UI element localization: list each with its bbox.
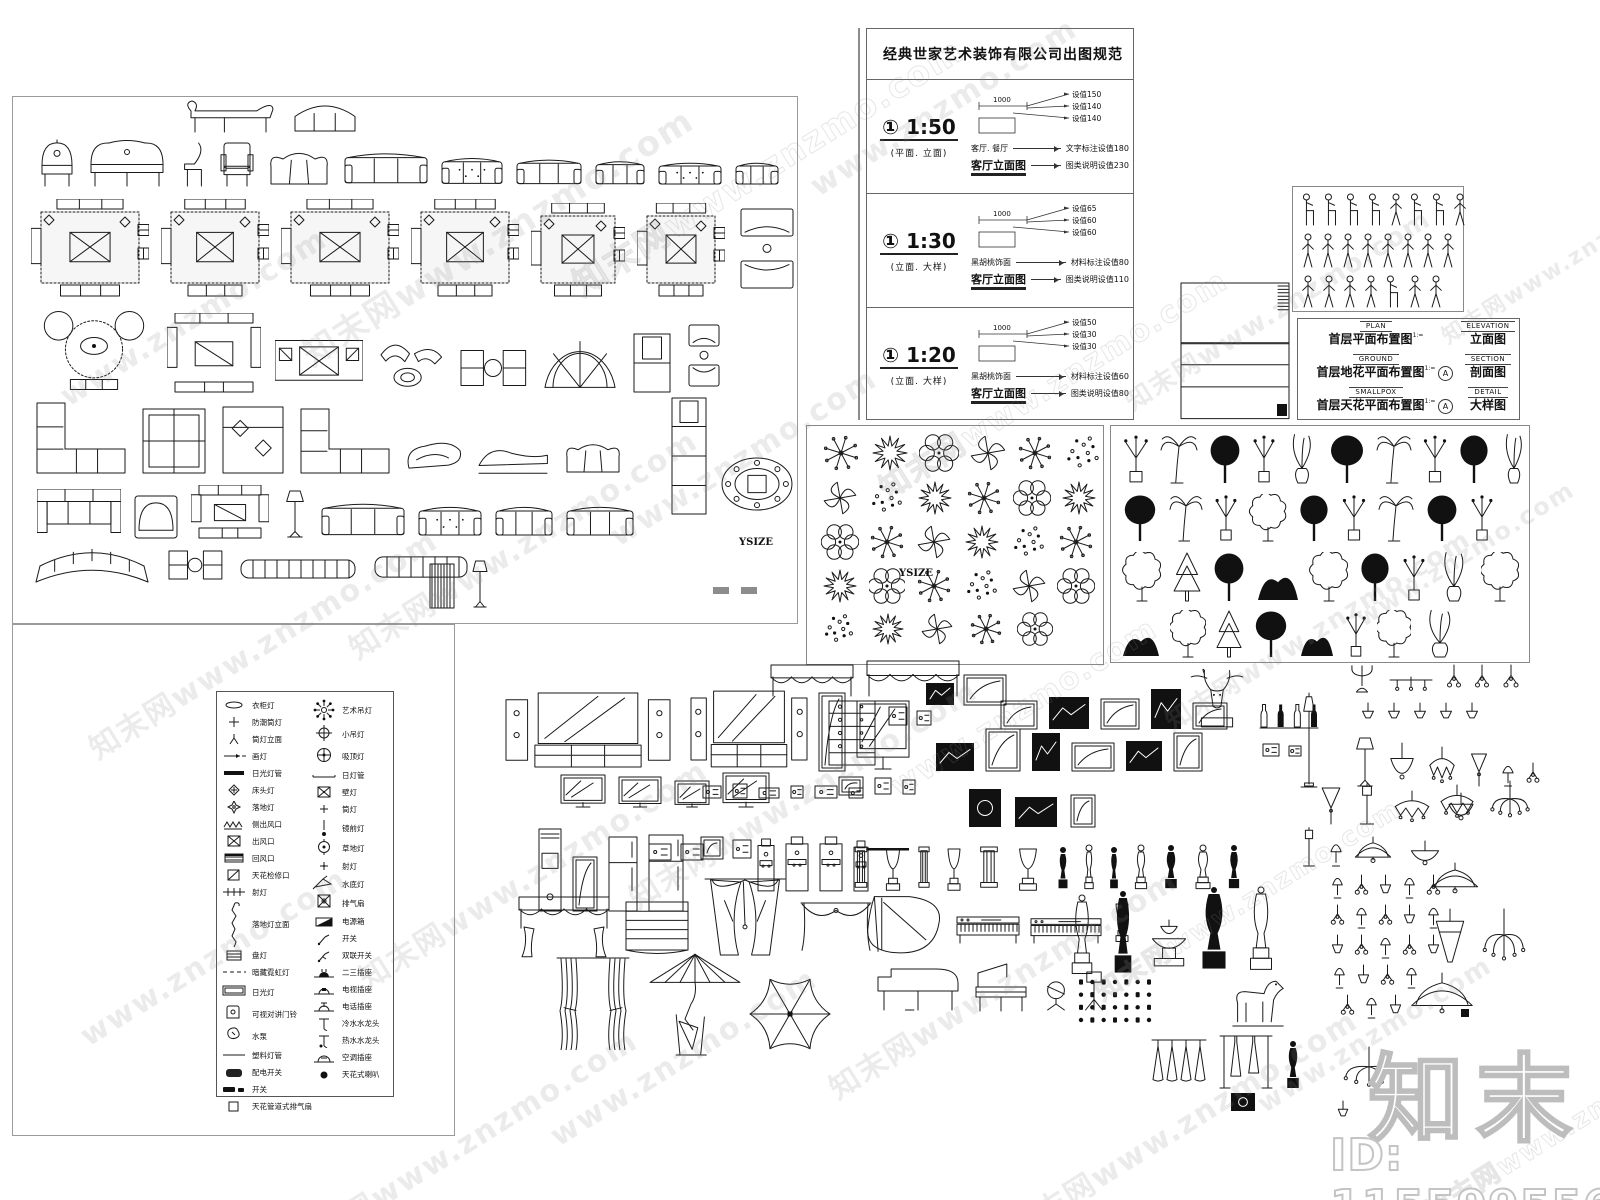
cad-block-trophy [944, 847, 964, 893]
cad-block-pt3 [1057, 568, 1095, 604]
cad-block-row [429, 559, 491, 609]
cad-block-stripedpanel [429, 563, 455, 609]
cad-block-gad [814, 784, 838, 800]
cad-block-row [1460, 1008, 1470, 1018]
cad-block-recliner [405, 437, 463, 475]
cad-block-row [821, 524, 1095, 560]
standards-scale-section: ① 1:30 (立面. 大样) 1000 设值65 设值60 设值60 黑胡桃饰… [867, 194, 1133, 308]
diamond-symbol-icon [221, 784, 247, 798]
legend-label: 镜前灯 [342, 823, 365, 834]
cad-block-tv [618, 776, 662, 810]
cad-block-row [700, 836, 752, 860]
cad-block-domep [1428, 862, 1482, 902]
scale-label: ① 1:30 (立面. 大样) [867, 194, 971, 307]
cad-block-pt5 [963, 568, 1001, 604]
dbl-symbol-icon [221, 981, 247, 1003]
cad-block-ypend [1340, 994, 1355, 1020]
legend-label: 开关 [252, 1084, 267, 1095]
cad-block-gad [902, 778, 916, 796]
cad-block-sofa_t [418, 499, 482, 539]
legend-row: 落地灯 [221, 799, 312, 816]
legend-label: 艺术吊灯 [342, 705, 372, 716]
cad-block-person_sit [1367, 193, 1383, 227]
legend-row: 日光灯 [221, 981, 312, 1003]
cad-block-pt2 [963, 524, 1001, 560]
cad-block-frame [1100, 698, 1140, 730]
cad-block-sofa [495, 499, 553, 539]
thin-symbol-icon [221, 1049, 247, 1063]
svg-text:设值30: 设值30 [1072, 341, 1097, 351]
cad-block-tr_black [1207, 434, 1243, 484]
dimension-diagram: 1000 设值50 设值30 设值30 [971, 314, 1127, 364]
drawing-label-row: SECTION 剖面图A [1458, 354, 1518, 387]
cad-block-person [1301, 275, 1315, 309]
sq-symbol-icon [221, 1100, 247, 1114]
cad-block-minil [1354, 904, 1369, 930]
cad-block-rug [31, 199, 149, 297]
cad-block-pot_tall [1401, 552, 1427, 602]
cad-block-palm [1168, 494, 1204, 542]
cad-block-row [1068, 890, 1136, 976]
detail-badge: A [1438, 399, 1453, 414]
legend-row: 吸顶灯 [311, 745, 380, 767]
cad-block-conew [1318, 786, 1344, 826]
cad-block-parasol [748, 972, 832, 1056]
cad-block-traypend [1378, 874, 1393, 900]
cad-block-crownch [1390, 790, 1434, 826]
cad-block-row [935, 728, 1203, 772]
cad-block-frameb [1048, 696, 1090, 730]
legend-row: 电话插座 [311, 998, 380, 1015]
cad-block-gad [916, 709, 932, 727]
legend-label: 衣柜灯 [252, 700, 275, 711]
cad-block-sofaset2 [191, 485, 269, 539]
cad-block-sofa3_plan [37, 489, 121, 539]
cad-block-row [713, 587, 757, 594]
legend-label: 塑料灯管 [252, 1050, 282, 1061]
cad-block-statueb [1110, 890, 1136, 976]
cad-block-pt1 [1057, 524, 1095, 560]
legend-label: 日灯管 [342, 770, 365, 781]
legend-label: 日光灯 [252, 987, 275, 998]
cad-block-sofasq [141, 407, 207, 475]
cad-block-settee_o [88, 137, 166, 187]
legend-row: 筒灯立面 [221, 731, 312, 748]
cad-block-pt1 [967, 612, 1005, 646]
cad-block-row [1330, 934, 1441, 960]
cad-block-row [183, 99, 357, 133]
cad-block-tr_black [1121, 494, 1159, 542]
cad-block-traypend [1360, 702, 1376, 724]
plus-symbol-icon [311, 803, 337, 817]
svg-text:设值60: 设值60 [1072, 215, 1097, 225]
cad-block-row [888, 705, 932, 727]
cad-block-traypend [1464, 702, 1480, 724]
boxx-symbol-icon [221, 835, 247, 849]
cad-block-person_sit [1301, 193, 1317, 227]
cdot-symbol-icon [311, 838, 337, 858]
legend-label: 电源箱 [342, 916, 365, 927]
legend-row: 冷水水龙头 [311, 1015, 380, 1032]
cad-block-person [1321, 233, 1335, 269]
cad-block-person_sit [1323, 193, 1339, 227]
cad-block-person [1301, 233, 1315, 269]
cad-block-minil [1332, 964, 1347, 990]
cad-block-sofa_t [441, 151, 503, 187]
fatbar-symbol-icon [221, 767, 247, 781]
cad-block-fountain [1146, 918, 1192, 970]
cad-block-row [37, 485, 634, 539]
legend-label: 出风口 [252, 836, 275, 847]
cad-block-tr_round [1309, 552, 1349, 602]
cad-block-gad [732, 838, 752, 860]
cad-block-drape [704, 876, 786, 958]
cad-block-ypend [1330, 904, 1345, 930]
cad-block-traypend [1438, 702, 1454, 724]
legend-column: 艺术吊灯 小吊灯 吸顶灯 日灯管 壁灯 筒灯 镜前灯 草地灯 射灯 水底灯 排气… [311, 697, 380, 1083]
cross-symbol-icon [221, 716, 247, 730]
cad-block-sofa [566, 499, 634, 539]
dimension-diagram: 1000 设值150 设值140 设值140 [971, 86, 1127, 136]
tc-symbol-icon [311, 1017, 337, 1031]
cad-block-frame [985, 728, 1021, 772]
legend-label: 防潮筒灯 [252, 717, 282, 728]
cad-block-minil [1330, 874, 1345, 900]
cad-block-pt4 [919, 612, 955, 646]
cad-block-l_sofa [299, 407, 391, 475]
cad-block-rug [161, 199, 269, 297]
legend-label: 排气扇 [342, 898, 365, 909]
cad-block-row [1301, 275, 1443, 309]
cad-block-gad [732, 782, 748, 800]
cad-block-row [1336, 1100, 1350, 1122]
half-symbol-icon [311, 915, 337, 929]
cad-block-person [1389, 193, 1403, 227]
cad-block-tr_black [1211, 552, 1247, 602]
cad-block-row [1178, 668, 1256, 732]
legend-row: 天花检修口 [221, 867, 312, 884]
legend-row: 配电开关 [221, 1064, 312, 1081]
cad-block-tr_black [1297, 494, 1331, 542]
cad-block-pot_tall [1469, 492, 1495, 542]
cad-block-row [690, 686, 910, 772]
cad-block-keyboard [956, 914, 1020, 944]
cad-block-rug [637, 203, 725, 297]
cad-block-statueb [1162, 844, 1180, 890]
cad-block-gad [790, 784, 804, 800]
cad-block-pine [1215, 610, 1243, 658]
dash-symbol-icon [221, 966, 247, 980]
cad-block-column [976, 845, 1002, 893]
sph-symbol-icon [311, 1000, 337, 1014]
cad-block-row [1150, 1028, 1302, 1090]
cad-block-ypend [1446, 664, 1462, 694]
cad-block-person [1429, 275, 1443, 309]
cad-block-rug [531, 203, 625, 297]
svg-text:1000: 1000 [993, 96, 1011, 104]
legend-label: 筒灯 [342, 804, 357, 815]
cad-block-ypend [1354, 934, 1369, 960]
cad-block-pt3 [919, 434, 959, 472]
cad-block-row [1432, 908, 1528, 968]
cad-block-person [1441, 233, 1455, 269]
pump-symbol-icon [221, 1025, 247, 1047]
standards-scale-section: ① 1:50 (平面. 立面) 1000 设值150 设值140 设值140 客… [867, 80, 1133, 194]
cad-block-hump [293, 103, 357, 133]
cad-sheet: YSIZE 衣柜灯 防潮筒灯 筒灯立面 画灯 日光灯管 床头灯 落地灯 侧出风口… [0, 0, 1600, 1200]
image-id: ID: 1155995563 [1330, 1130, 1600, 1200]
cad-block-pt1 [869, 524, 905, 560]
cad-block-pt3 [1017, 612, 1053, 646]
cad-block-row [1428, 862, 1482, 902]
drawing-note: 图类说明设值230 [1066, 160, 1129, 171]
cad-block-patio [648, 950, 742, 1058]
legend-row: 可视对讲门铃 [221, 1003, 312, 1025]
svg-text:设值140: 设值140 [1072, 113, 1102, 123]
cad-block-frame [1071, 742, 1115, 772]
cad-block-piano_fr [972, 962, 1030, 1012]
cad-block-row [31, 199, 797, 297]
cad-block-conebig [1432, 908, 1468, 968]
cad-block-statue [1068, 894, 1096, 976]
legend-label: 射灯 [342, 861, 357, 872]
cad-block-row [648, 842, 704, 862]
svg-text:设值30: 设值30 [1072, 329, 1097, 339]
cad-block-chair_s [179, 141, 207, 187]
cad-block-pillow [221, 405, 285, 475]
cad-block-gad [874, 776, 892, 796]
cad-block-pt4 [821, 480, 859, 516]
cad-block-fan [541, 337, 619, 393]
cad-block-gad [648, 842, 672, 862]
legend-row: 盘灯 [221, 947, 312, 964]
legend-row: 二三插座 [311, 964, 380, 981]
cad-block-statueb [1108, 846, 1120, 890]
svg-text:设值140: 设值140 [1072, 101, 1102, 111]
cad-block-pot_tall [1344, 610, 1368, 658]
legend-label: 可视对讲门铃 [252, 1009, 297, 1020]
cad-block-tvwall [690, 686, 808, 772]
cad-block-row [1180, 282, 1290, 420]
cad-block-person_sit [1385, 275, 1401, 309]
cad-block-column [916, 845, 932, 893]
cad-block-traypend [1412, 702, 1428, 724]
cad-block-pot_tall [1421, 432, 1449, 484]
cad-block-rack [1218, 1028, 1274, 1090]
cad-block-street [1298, 692, 1320, 788]
cad-block-row [748, 972, 832, 1056]
cad-block-minil [1364, 994, 1379, 1020]
drawing-label-row: PLAN 首层平面布置图1:= [1302, 321, 1450, 354]
cad-block-gad [888, 705, 908, 727]
star4-symbol-icon [221, 801, 247, 815]
svg-text:设值50: 设值50 [1072, 317, 1097, 327]
cad-block-pt4 [915, 524, 953, 560]
cad-block-person [1341, 233, 1355, 269]
oval-symbol-icon [221, 699, 247, 713]
cad-block-frameb [925, 682, 955, 706]
bardot-symbol-icon [311, 818, 337, 838]
cad-block-frame [1000, 700, 1038, 730]
cad-block-statueb [1284, 1040, 1302, 1090]
legend-row: 回风口 [221, 850, 312, 867]
people-blocks-panel [1292, 186, 1464, 312]
drawing-name: 客厅立面图 [971, 385, 1026, 402]
cad-block-bushb [1256, 566, 1300, 602]
cad-block-chairset [737, 207, 797, 297]
cad-block-postl [1300, 826, 1318, 868]
cad-block-tr_black [1252, 610, 1290, 658]
cad-block-chairset [685, 323, 723, 393]
cad-block-puff [563, 439, 623, 475]
cad-block-gad [702, 784, 722, 800]
cad-block-vasebr [1499, 432, 1529, 484]
cad-block-barcode [741, 587, 757, 594]
cad-block-minil [1402, 874, 1417, 900]
cad-block-pt3 [1013, 480, 1051, 516]
cad-block-row [518, 876, 872, 958]
cad-block-row [35, 309, 723, 393]
legend-table: 衣柜灯 防潮筒灯 筒灯立面 画灯 日光灯管 床头灯 落地灯 侧出风口 出风口 回… [216, 691, 394, 1097]
cad-block-tr_black [1424, 494, 1460, 542]
cad-block-tv [560, 774, 606, 810]
legend-label: 日光灯管 [252, 768, 282, 779]
drawing-label-row: SMALLPOX 首层天花平面布置图1:= [1302, 387, 1450, 420]
cad-block-flamp [469, 559, 491, 609]
cad-block-barlt [1388, 676, 1434, 694]
cad-block-drum [1042, 980, 1070, 1012]
cad-block-bushb [1299, 628, 1335, 658]
legend-label: 水底灯 [342, 879, 365, 890]
cad-block-traypend [1388, 994, 1403, 1020]
cad-block-row [1262, 742, 1302, 758]
cad-block-sofa [344, 145, 428, 187]
cad-block-pots [1076, 976, 1154, 1026]
cad-block-row [821, 480, 1097, 516]
legend-row: 日光灯管 [221, 765, 312, 782]
legend-row: 电源箱 [311, 913, 380, 930]
cad-block-flamp [282, 489, 308, 539]
legend-row: 热水水龙头 [311, 1032, 380, 1049]
cad-block-tr_black [1327, 434, 1367, 484]
furniture-blocks-panel: YSIZE [12, 96, 798, 624]
cad-block-chair_o [39, 139, 75, 187]
legend-row: 水泵 [221, 1025, 312, 1047]
legend-label: 水泵 [252, 1031, 267, 1042]
cad-block-traypend [1402, 904, 1417, 930]
scale-label: ① 1:50 (平面. 立面) [867, 80, 971, 193]
cad-block-titleblock [1180, 282, 1290, 420]
legend-label: 回风口 [252, 853, 275, 864]
cad-block-wing [220, 141, 254, 187]
cad-block-statue [1246, 886, 1276, 972]
cad-block-person [1401, 233, 1415, 269]
cplus-symbol-icon [311, 745, 337, 767]
legend-label: 壁灯 [342, 787, 357, 798]
cad-block-traypend [1336, 1100, 1350, 1122]
legend-row: 塑料灯管 [221, 1047, 312, 1064]
legend-row: 日灯管 [311, 767, 380, 784]
legend-label: 小吊灯 [342, 729, 365, 740]
legend-row: 床头灯 [221, 782, 312, 799]
text-style-sample: YSIZE [899, 568, 933, 579]
cad-block-person [1361, 233, 1375, 269]
cad-block-frameb [1014, 796, 1058, 828]
cad-block-curvedlong [33, 547, 151, 585]
cad-block-row [1121, 492, 1495, 542]
detail-badge: A [1438, 366, 1453, 381]
legend-label: 天花管道式排气扇 [252, 1101, 312, 1112]
drawing-label-column: PLAN 首层平面布置图1:=GROUND 首层地花平面布置图1:=SMALLP… [1302, 321, 1450, 420]
cad-block-pt1 [821, 434, 861, 472]
sample-note: 文字标注设值180 [1066, 143, 1129, 154]
cad-block-ypend [1502, 664, 1520, 694]
cad-block-curtall [556, 956, 630, 1050]
cad-block-row [1436, 780, 1532, 822]
squig-symbol-icon [221, 901, 247, 947]
cad-block-traypend [1356, 964, 1371, 990]
cad-block-row [968, 788, 1096, 828]
legend-label: 画灯 [252, 751, 267, 762]
legend-row: 壁灯 [311, 784, 380, 801]
cad-block-row [1301, 193, 1467, 227]
cad-block-person [1343, 275, 1357, 309]
cad-block-ypend [1354, 874, 1369, 900]
diag-symbol-icon [221, 869, 247, 883]
cad-block-row [1348, 664, 1520, 694]
svg-text:设值150: 设值150 [1072, 89, 1102, 99]
cad-block-sqdot [1460, 1008, 1470, 1018]
ccross-symbol-icon [311, 723, 337, 745]
cad-block-row [1196, 886, 1276, 972]
legend-label: 电话插座 [342, 1001, 372, 1012]
cad-block-trophy [1014, 847, 1042, 893]
cad-block-barcode [713, 587, 729, 594]
legend-row: 天花式喇叭 [311, 1066, 380, 1083]
cad-block-row [821, 568, 1095, 604]
cad-block-gad [758, 786, 780, 800]
legend-row: 暗藏霓虹灯 [221, 964, 312, 981]
legend-label: 天花式喇叭 [342, 1069, 380, 1080]
cad-block-row [856, 888, 948, 960]
cad-block-row [1340, 994, 1403, 1020]
cad-block-palm [1375, 434, 1413, 484]
legend-row: 射灯 [311, 858, 380, 875]
cad-block-person [1421, 233, 1435, 269]
cad-block-leafch [1480, 908, 1528, 968]
cad-block-frame [1173, 732, 1203, 772]
trees-elevation-panel [1110, 425, 1530, 663]
cad-block-bushb [1121, 628, 1161, 658]
cad-block-puff [267, 147, 331, 187]
cad-block-person_sit [1431, 193, 1447, 227]
sw1-symbol-icon [311, 932, 337, 946]
drawing-label-row: ELEVATION 立面图 [1458, 321, 1518, 354]
cad-block-l_sofa [35, 401, 127, 475]
cad-block-sofa_t [658, 157, 722, 187]
hlines-symbol-icon [221, 852, 247, 866]
drawing-label-row: DETAIL 大样图A [1458, 387, 1518, 420]
legend-row: 开关 [221, 1081, 312, 1098]
legend-row: 画灯 [221, 748, 312, 765]
legend-label: 侧出风口 [252, 819, 282, 830]
legend-row: 落地灯立面 [221, 901, 312, 947]
svg-text:1000: 1000 [993, 210, 1011, 218]
sample-note: 材料标注设值80 [1071, 257, 1129, 268]
spk-symbol-icon [311, 1068, 337, 1082]
cad-block-flamp [1352, 736, 1378, 788]
drawing-note: 图类说明设值80 [1071, 388, 1129, 399]
